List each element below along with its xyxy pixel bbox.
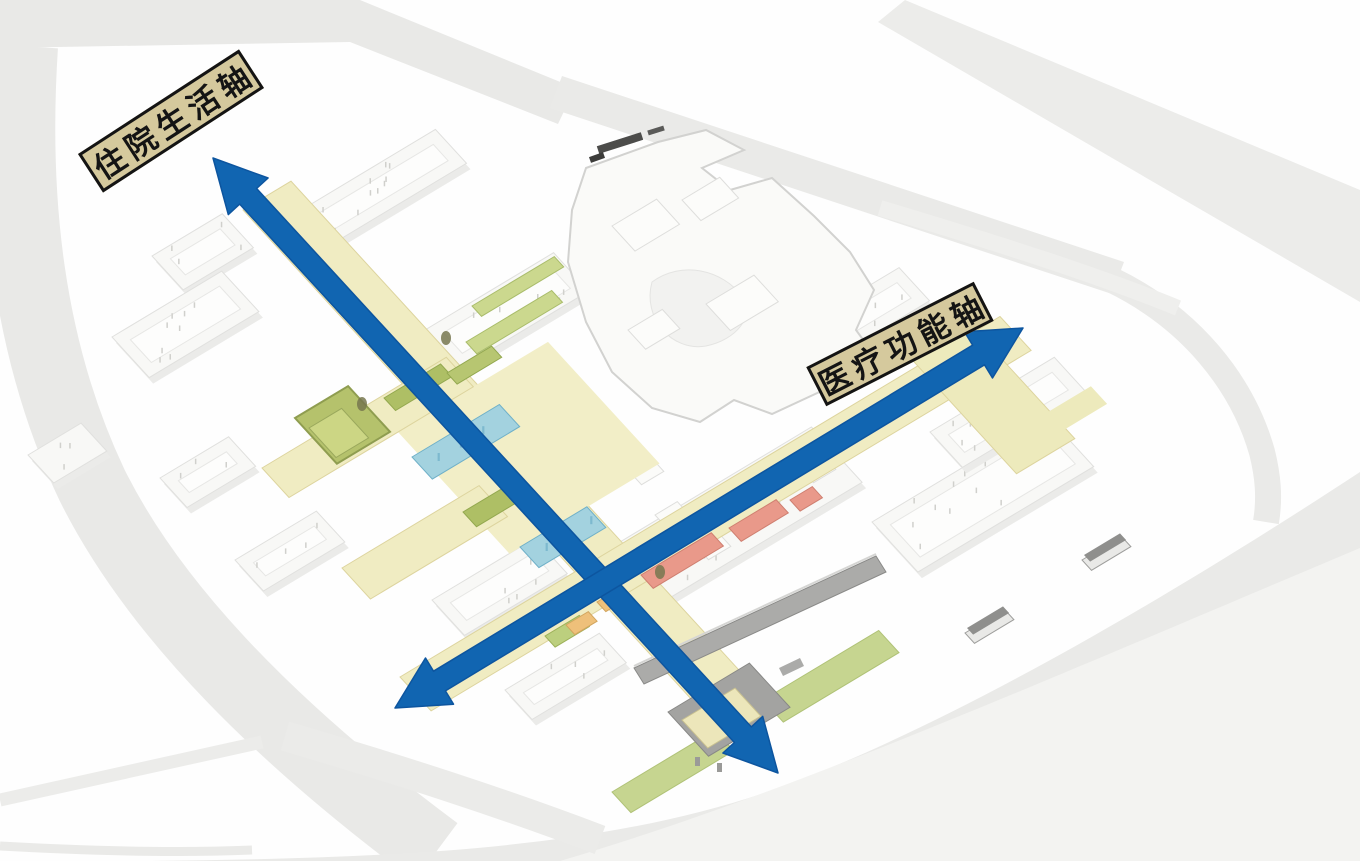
tree <box>385 177 387 183</box>
axis-tree <box>655 565 665 579</box>
tree <box>912 522 914 528</box>
road-top-left <box>0 0 575 124</box>
axis-tree <box>357 397 367 411</box>
tree <box>913 498 915 504</box>
tree <box>316 523 318 529</box>
roads-layer <box>0 0 1360 861</box>
tree <box>499 307 501 313</box>
tree <box>221 222 223 228</box>
ring-leg <box>717 763 722 772</box>
tree <box>974 445 976 451</box>
tree <box>687 575 689 581</box>
tree <box>389 163 391 169</box>
ring-leg <box>695 757 700 766</box>
tree <box>178 259 180 265</box>
road-east <box>1112 280 1268 522</box>
tree <box>357 210 359 216</box>
tree <box>504 588 506 594</box>
tree <box>240 245 242 251</box>
tree <box>195 459 197 465</box>
tree <box>875 303 877 309</box>
tree <box>901 294 903 300</box>
tree <box>604 650 606 656</box>
road-ne-minor <box>880 208 1178 308</box>
tree <box>166 322 168 328</box>
tree <box>256 562 258 568</box>
blue-building-window <box>438 453 440 461</box>
tree <box>563 289 565 295</box>
tree <box>551 664 553 670</box>
tree <box>159 357 161 363</box>
tree <box>171 246 173 252</box>
garden-gate-post <box>590 155 604 160</box>
tree <box>384 181 386 187</box>
tree <box>961 440 963 446</box>
tree <box>322 207 324 213</box>
tree <box>194 302 196 308</box>
tree <box>952 421 954 427</box>
tree <box>226 462 228 468</box>
tree <box>69 443 71 449</box>
tree <box>305 542 307 548</box>
tree <box>535 579 537 585</box>
road-bottom-minor <box>0 846 252 851</box>
tree <box>285 548 287 554</box>
tree <box>184 311 186 317</box>
tree <box>1000 500 1002 506</box>
corridor-link <box>779 658 804 676</box>
axis-analysis-diagram: 住院生活轴 医疗功能轴 <box>0 0 1360 861</box>
tree <box>575 662 577 668</box>
tree <box>473 312 475 318</box>
blue-building-window <box>546 543 548 551</box>
tree <box>874 321 876 327</box>
tree <box>377 188 379 194</box>
tree <box>63 464 65 470</box>
tree <box>935 505 937 511</box>
tree <box>370 190 372 196</box>
tree <box>370 178 372 184</box>
axis-tree <box>441 331 451 345</box>
road-top-right-band <box>878 0 1360 302</box>
tree <box>949 508 951 514</box>
tree <box>385 162 387 168</box>
site-plan <box>0 0 1360 861</box>
blue-building-window <box>482 426 484 434</box>
tree <box>170 354 172 360</box>
tree <box>920 544 922 550</box>
tree <box>583 673 585 679</box>
tree <box>953 481 955 487</box>
tree <box>180 473 182 479</box>
tree <box>976 488 978 494</box>
tree <box>60 443 62 449</box>
tree <box>179 326 181 332</box>
tree <box>508 598 510 604</box>
garden-gate <box>598 136 642 150</box>
road-sw-minor <box>0 742 262 800</box>
tree <box>171 313 173 319</box>
blue-building-window <box>590 516 592 524</box>
tree <box>161 348 163 354</box>
tree <box>516 594 518 600</box>
